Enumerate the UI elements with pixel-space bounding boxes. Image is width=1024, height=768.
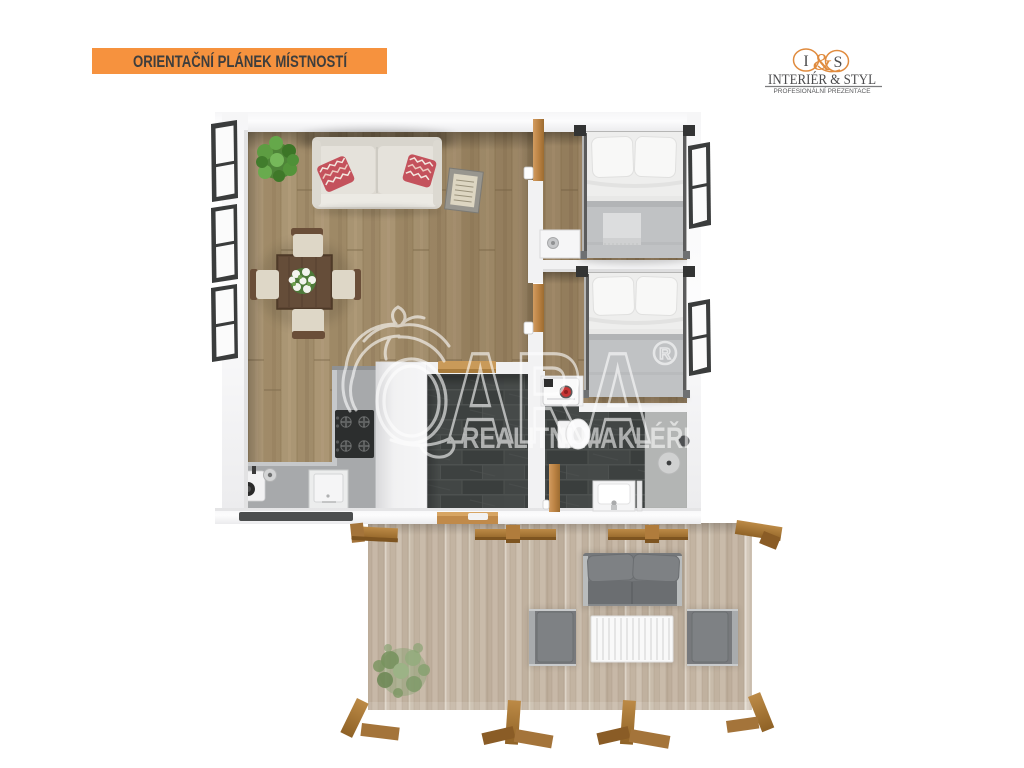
svg-text:PROFESIONÁLNÍ PREZENTACE: PROFESIONÁLNÍ PREZENTACE (774, 86, 872, 95)
svg-text:S: S (834, 54, 843, 71)
svg-text:ORIENTAČNÍ PLÁNEK MÍSTNOSTÍ: ORIENTAČNÍ PLÁNEK MÍSTNOSTÍ (133, 52, 347, 71)
svg-text:I: I (803, 53, 808, 70)
svg-text:INTERIÉR & STYL: INTERIÉR & STYL (768, 71, 876, 88)
svg-text:REALITNÍ MAKLÉŘI: REALITNÍ MAKLÉŘI (462, 421, 690, 455)
svg-text:R: R (659, 346, 671, 363)
